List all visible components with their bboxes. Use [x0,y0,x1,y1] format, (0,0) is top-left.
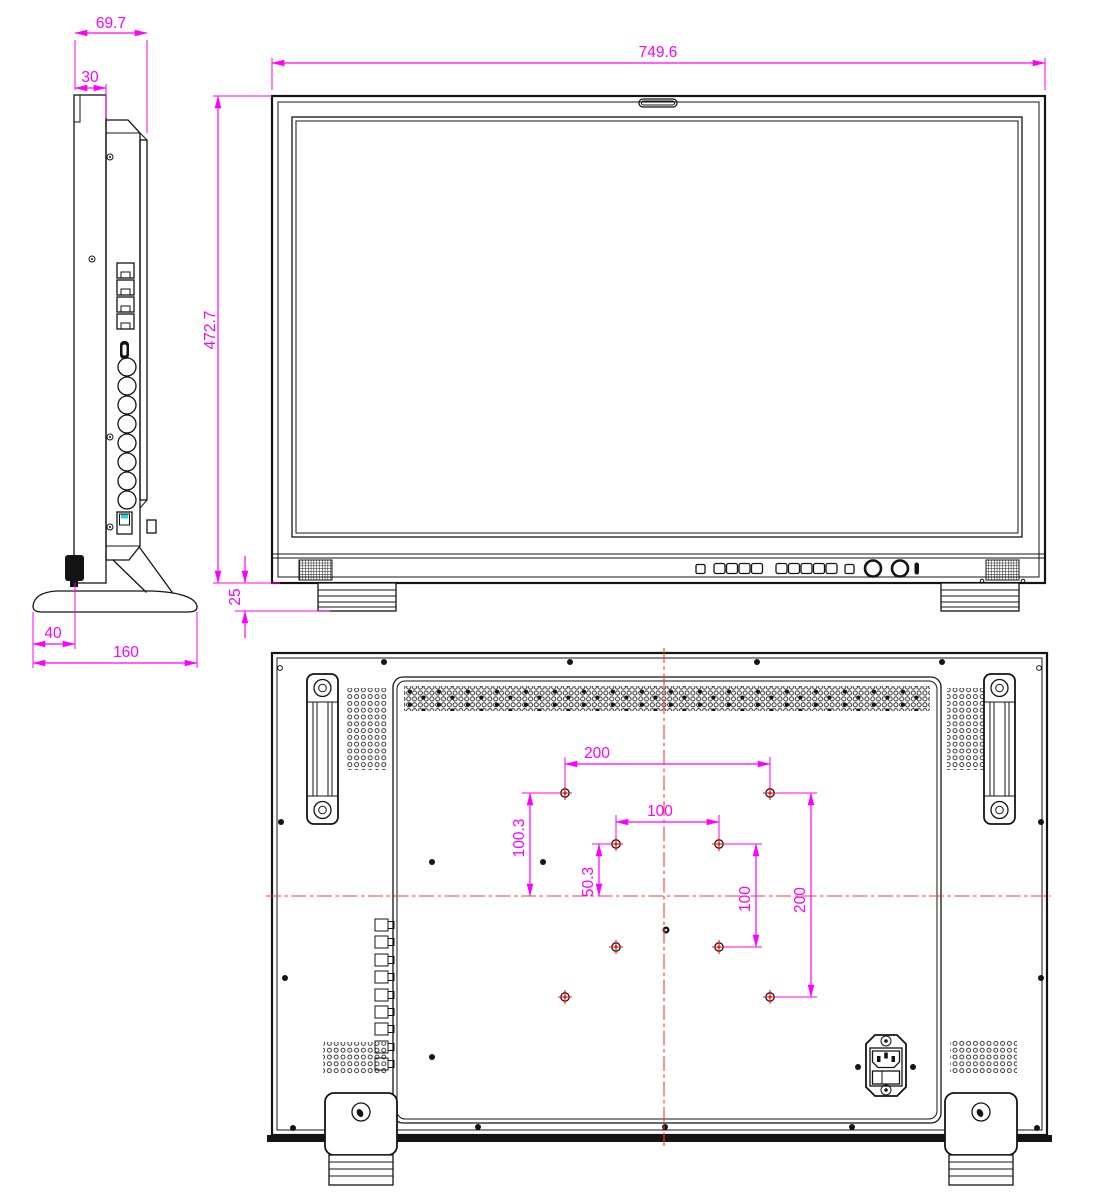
front-foot-right [941,583,1019,611]
vesa-hole [558,786,572,800]
rj45-ports [117,263,134,329]
side-rear-housing [106,120,140,560]
side-bezel [74,95,106,583]
dim-label: 200 [584,745,610,762]
dim-vesa-offset-100-3: 100.3 [511,793,560,896]
dim-label: 100.3 [511,819,528,858]
stand-base [33,591,197,612]
dim-label: 100 [647,803,673,820]
control-button [801,564,812,574]
control-button [752,564,763,574]
handle-left [307,674,338,824]
control-knob [892,561,908,577]
vent-grid-top-left [346,688,388,770]
vesa-hole [712,837,726,851]
speaker-grille-left [299,560,332,580]
bnc-connector [375,989,394,1001]
side-view: 69.7 30 40 160 [33,15,197,668]
vesa-hole [712,940,726,954]
control-strip-lines [272,554,1045,558]
vesa-hole [609,940,623,954]
front-bezel-inner [278,102,1039,577]
dim-label: 25 [227,588,244,605]
vesa-hole [558,990,572,1004]
side-stud [147,520,156,533]
dim-label: 50.3 [580,867,597,897]
dim-label: 472.7 [202,311,219,350]
control-button [789,564,800,574]
vent-grid-bottom-right [950,1040,1017,1073]
vent-band-top [404,686,930,711]
monitor-dimension-drawing: 69.7 30 40 160 [0,0,1100,1198]
rear-panel [393,677,941,1123]
side-bezel-lip [74,95,80,122]
rear-foot-left [325,1093,397,1185]
rear-panel-inner [397,681,937,1119]
control-button [826,564,837,574]
screen [296,121,1018,533]
front-cabinet [272,96,1045,583]
dim-label: 40 [44,625,62,642]
bnc-connector [375,936,394,948]
dim-label: 100 [737,886,754,912]
dim-front-height: 472.7 [202,96,280,583]
dim-vesa-100-horizontal: 100 [616,803,719,838]
dim-label: 69.7 [96,15,126,32]
bnc-connector [375,1006,394,1018]
control-button [714,564,725,574]
stand [33,548,197,612]
top-vent-slot [639,99,677,107]
bnc-connector [375,954,394,966]
dim-label: 30 [81,69,99,86]
bnc-connector [375,1023,394,1035]
control-button [696,565,705,574]
control-buttons [696,561,919,577]
rear-foot-right [945,1093,1017,1185]
usb-port [120,341,129,359]
power-switch [117,512,132,534]
technical-drawing-page: 69.7 30 40 160 [0,0,1100,1198]
control-button [739,564,750,574]
stand-clamp-knob [65,555,84,581]
switch-detail [121,515,128,519]
rear-view: 200 100 100.3 50.3 100 200 [266,648,1052,1185]
dim-label: 200 [792,887,809,913]
control-button [776,564,787,574]
front-view: 749.6 472.7 25 [202,44,1045,638]
stand-neck [113,548,172,592]
screen-outer [292,117,1022,537]
control-button [814,564,825,574]
side-back-panel-chamfer [140,133,147,508]
bnc-connectors-side [118,358,136,509]
bnc-connector [375,919,394,931]
control-button [727,564,738,574]
handle-right [984,674,1015,824]
rear-frame-inner [277,658,1042,1130]
front-foot-left [318,583,396,611]
vesa-hole [763,786,777,800]
control-button [845,565,854,574]
bnc-connector [375,971,394,983]
speaker-grille-right [986,560,1019,580]
dim-vesa-offset-50-3: 50.3 [580,844,611,897]
power-inlet [855,1035,916,1096]
vesa-hole [609,837,623,851]
side-back-panel [140,140,147,500]
side-screws [89,154,113,530]
vesa-hole [763,990,777,1004]
dim-vesa-200-vertical: 200 [775,793,817,997]
dim-front-width: 749.6 [272,44,1045,90]
stand-clamp-stem [70,580,78,587]
dim-label: 749.6 [639,44,678,61]
power-led [915,563,920,575]
dim-label: 160 [113,644,139,661]
control-knob [865,561,881,577]
dim-vesa-200-horizontal: 200 [565,745,770,787]
